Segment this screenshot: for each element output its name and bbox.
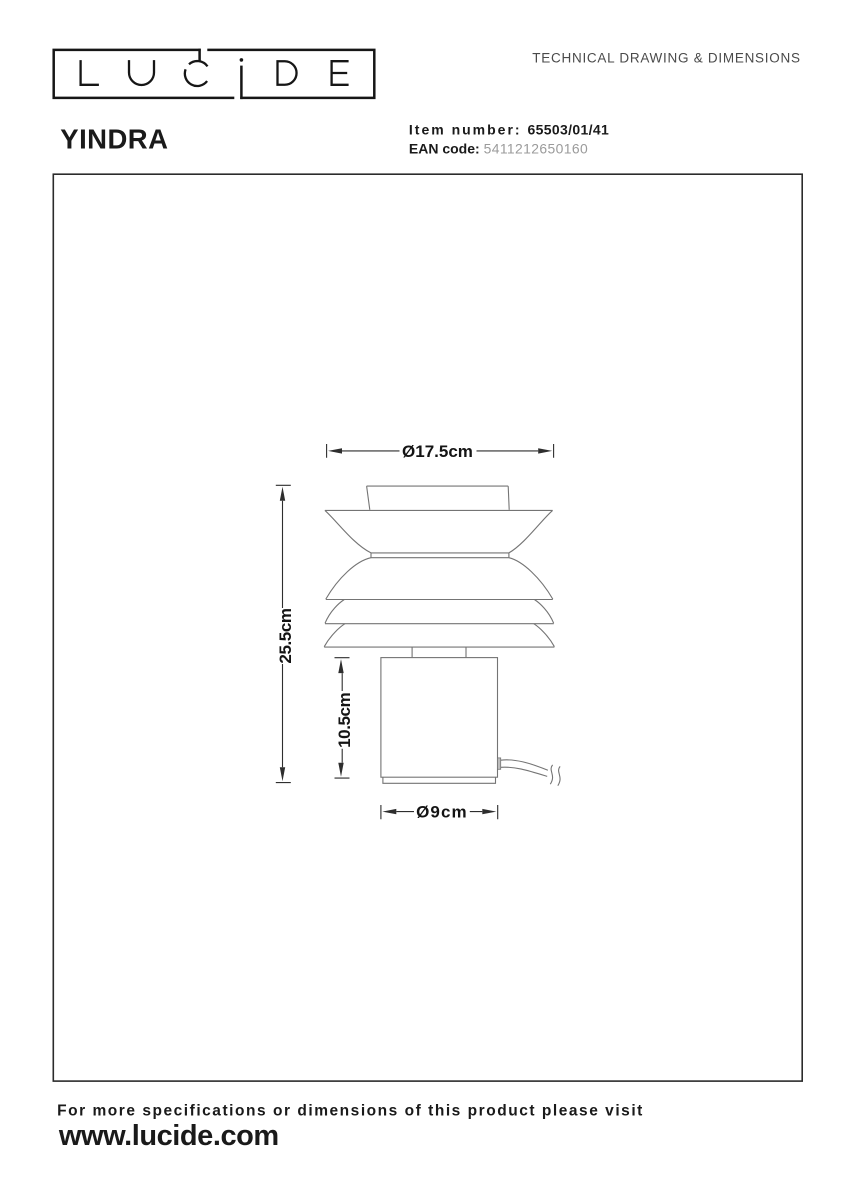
svg-text:www.lucide.com: www.lucide.com: [58, 1120, 279, 1152]
svg-text:10.5cm: 10.5cm: [335, 692, 354, 747]
svg-text:EAN code: 5411212650160: EAN code: 5411212650160: [409, 141, 588, 157]
svg-text:Ø17.5cm: Ø17.5cm: [402, 442, 473, 461]
svg-text:25.5cm: 25.5cm: [276, 608, 295, 663]
svg-text:YINDRA: YINDRA: [60, 124, 168, 155]
svg-text:TECHNICAL DRAWING & DIMENSIONS: TECHNICAL DRAWING & DIMENSIONS: [532, 51, 800, 66]
svg-text:For more specifications or dim: For more specifications or dimensions of…: [57, 1103, 644, 1120]
svg-text:Item number: 65503/01/41: Item number: 65503/01/41: [409, 122, 609, 138]
svg-text:Ø9cm: Ø9cm: [416, 802, 468, 821]
